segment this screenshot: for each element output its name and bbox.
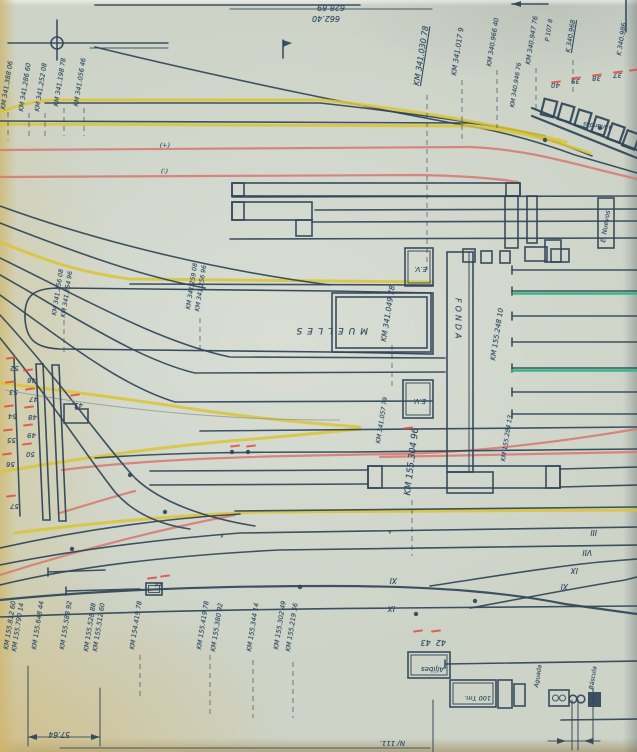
hatch-block (232, 183, 244, 196)
aljibes-box (408, 652, 450, 678)
dot (473, 599, 477, 603)
arrowhead (91, 734, 100, 740)
bottom-tracks (0, 514, 637, 752)
track-line (0, 606, 637, 617)
box (514, 684, 525, 706)
hatch-block (368, 466, 382, 488)
pier (558, 104, 575, 123)
small-building (64, 404, 88, 423)
dot (414, 612, 418, 616)
arrowhead (557, 738, 566, 744)
dimensions (28, 666, 600, 750)
track-line (315, 209, 637, 210)
flag-icon (283, 40, 292, 47)
deck-line (532, 108, 637, 150)
dot (598, 126, 602, 130)
ladder-line (14, 358, 20, 516)
fonda-annex (447, 472, 493, 493)
quay-outline (25, 288, 433, 354)
track-line (150, 470, 368, 471)
warehouse-outline (332, 293, 431, 352)
box (525, 247, 547, 261)
ev-box-inner (406, 383, 430, 415)
yellow-track (0, 429, 360, 472)
dot (70, 547, 74, 551)
track-line (45, 103, 545, 136)
arrowhead (584, 738, 593, 744)
red-track (0, 175, 518, 182)
hatch-block (546, 466, 560, 488)
hatched-building (598, 198, 614, 248)
track-line (560, 467, 637, 469)
platform (368, 466, 560, 488)
track-curve (0, 206, 330, 285)
dot (543, 138, 547, 142)
track-line (230, 238, 637, 239)
pier (574, 109, 591, 128)
dimension-extension (572, 700, 578, 750)
track-line (0, 545, 637, 585)
yellow-track (15, 510, 637, 533)
red-track (0, 147, 637, 179)
aljibes-box-inner (411, 655, 447, 675)
railway-yard-plan: 628.89662.40KM 341.388 06KM 341.286 60KM… (0, 0, 637, 752)
hatch-block (506, 183, 520, 196)
track-line (150, 484, 368, 485)
warehouse-inner (336, 297, 427, 348)
dimension-extension (28, 666, 100, 746)
platforms (232, 183, 560, 488)
circle-symbol (569, 695, 577, 703)
middle-tracks (0, 196, 637, 529)
plan-drawing (0, 0, 637, 752)
track-line (200, 427, 637, 431)
box (551, 249, 569, 262)
dot (246, 450, 250, 454)
circle-symbol (553, 695, 559, 701)
platform (232, 183, 520, 196)
stub-tracks (512, 266, 637, 418)
dashed-leader (140, 655, 293, 718)
hatch-block (232, 202, 244, 220)
track-curve (430, 559, 637, 586)
dot (128, 473, 132, 477)
stub-track (445, 660, 637, 668)
weighbridge-box-inner (453, 683, 493, 704)
arrowhead (512, 1, 521, 7)
hatched-building (527, 196, 537, 243)
box (500, 251, 510, 263)
track-line (312, 221, 637, 222)
track-line (560, 485, 637, 487)
track-curve (0, 338, 190, 529)
weighbridge-box (450, 680, 496, 707)
arrowhead (28, 734, 37, 740)
hatch-block (296, 220, 312, 236)
track-line (130, 284, 433, 285)
pier (607, 123, 625, 142)
leader-lines (8, 60, 573, 718)
circle-symbol (560, 695, 566, 701)
box (498, 680, 512, 708)
dot (298, 585, 302, 589)
box (481, 251, 492, 263)
track-line (512, 270, 637, 414)
dot (163, 510, 167, 514)
ev-box (403, 380, 433, 418)
dot (230, 450, 234, 454)
filled-box (588, 692, 601, 707)
red-track (60, 491, 135, 513)
